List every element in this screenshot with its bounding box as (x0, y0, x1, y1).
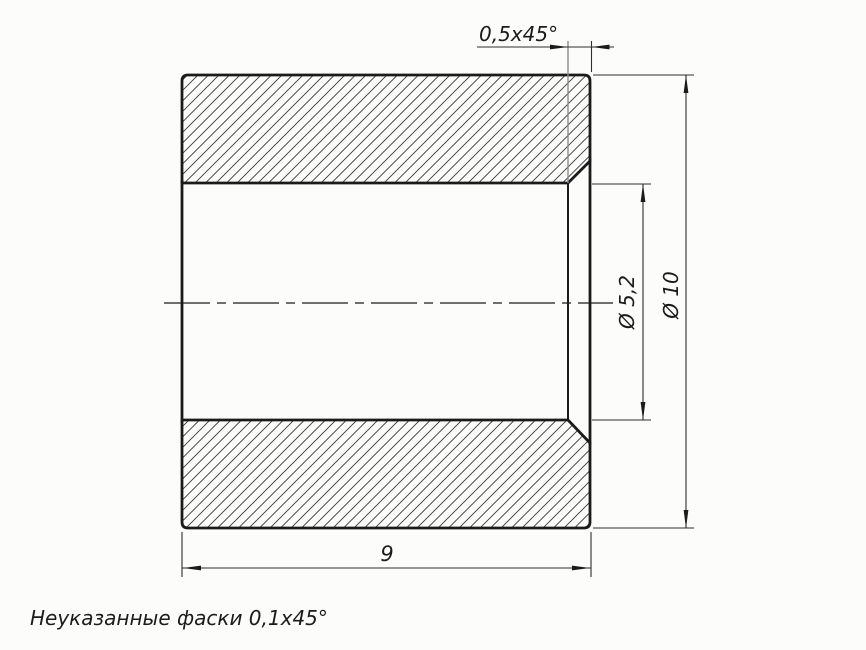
outer-dia-arrow-top (684, 75, 689, 93)
technical-drawing-canvas: 0,5x45° Ø 5,2 Ø 10 9 Неуказанные фаски 0… (0, 0, 866, 650)
unspecified-chamfers-note: Неуказанные фаски 0,1x45° (30, 606, 328, 630)
inner-diameter-label: Ø 5,2 (615, 275, 639, 330)
length-dimension-label: 9 (380, 542, 393, 566)
inner-dia-arrow-bottom (641, 402, 646, 420)
length-arrow-right (572, 566, 590, 571)
outer-dia-arrow-bottom (684, 510, 689, 528)
length-arrow-left (183, 566, 201, 571)
inner-dia-arrow-top (641, 184, 646, 202)
chamfer-arrow-right (592, 45, 610, 50)
outer-diameter-label: Ø 10 (659, 271, 683, 320)
drawing-sheet: 0,5x45° Ø 5,2 Ø 10 9 Неуказанные фаски 0… (0, 0, 866, 650)
section-bottom-band (182, 420, 590, 528)
chamfer-dimension-label: 0,5x45° (479, 22, 558, 46)
part-section-view (182, 41, 590, 528)
section-top-band (182, 75, 590, 183)
